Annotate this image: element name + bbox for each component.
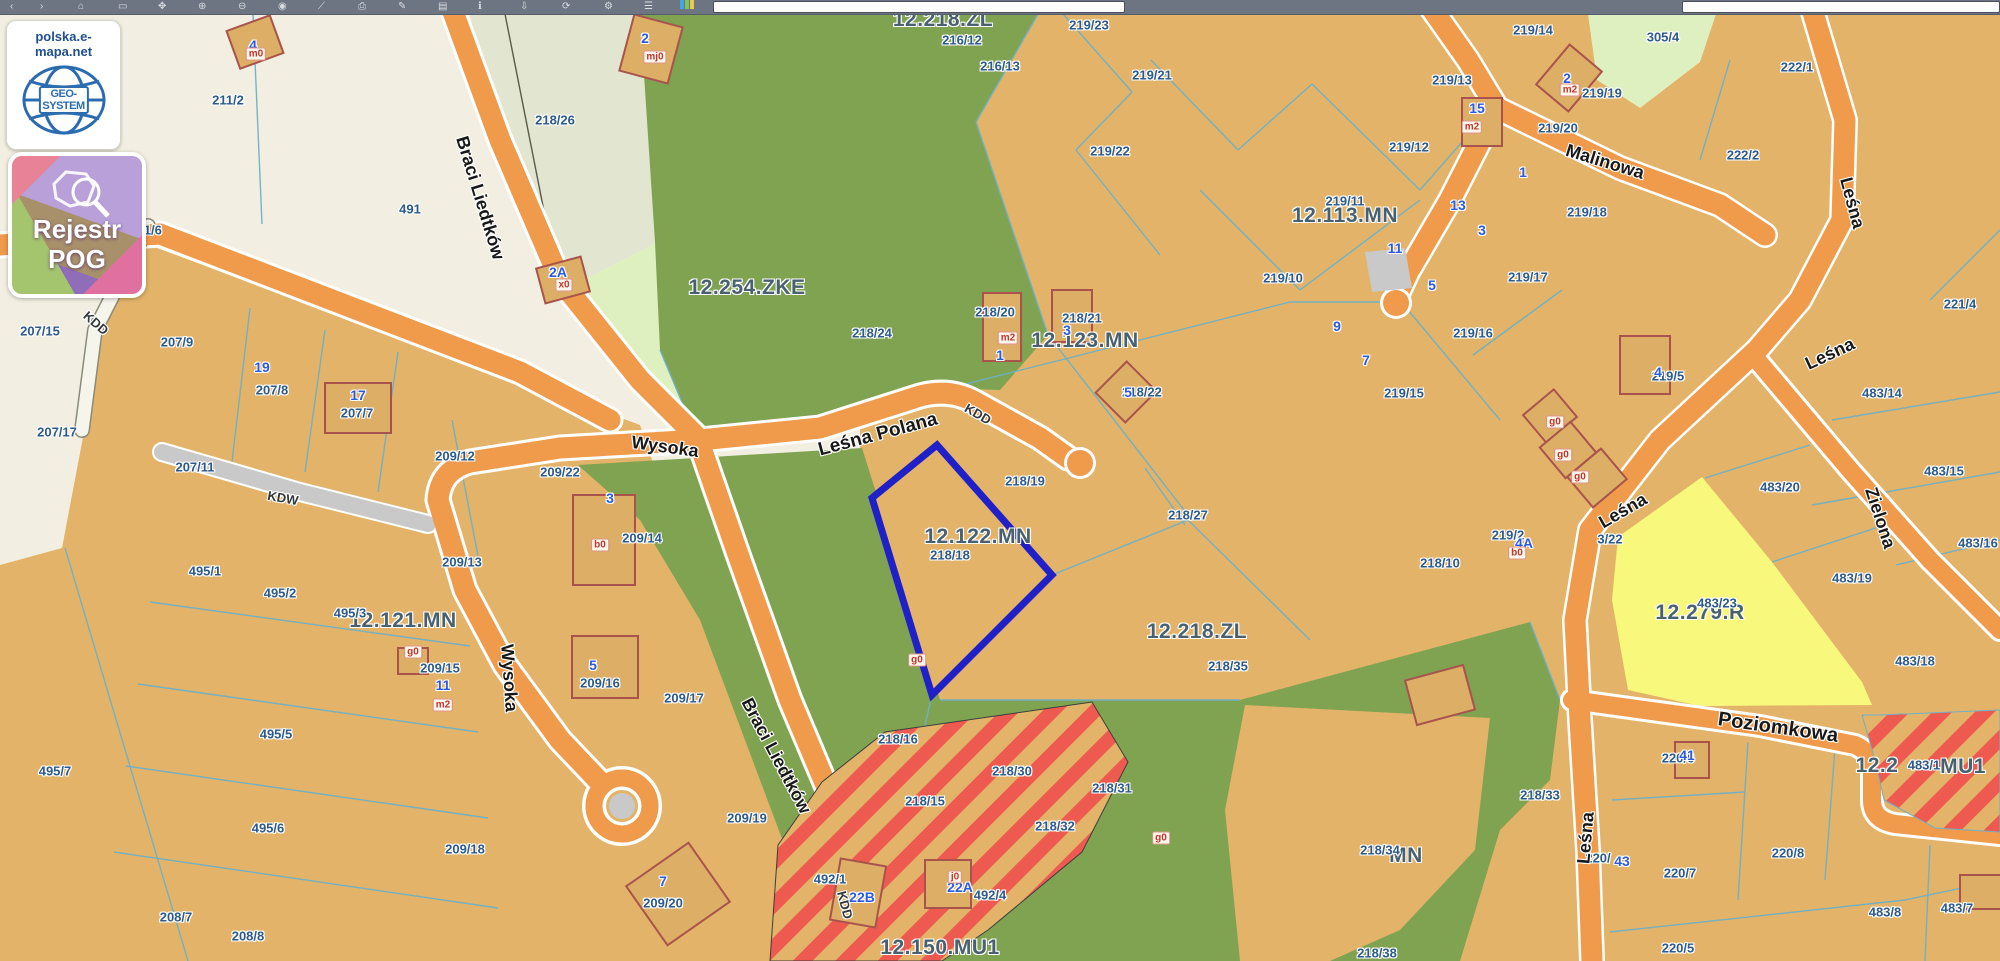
- forward-icon[interactable]: ›: [40, 0, 43, 13]
- pan-icon[interactable]: ✥: [158, 0, 166, 13]
- map-application: { "toolbar": { "icons": [ {"name":"back-…: [0, 0, 2000, 961]
- zoom-out-icon[interactable]: ⊖: [238, 0, 246, 13]
- search-input-left[interactable]: [713, 1, 1125, 13]
- info-icon[interactable]: ℹ: [478, 0, 482, 13]
- geo-system-label: GEO-SYSTEM: [38, 86, 88, 114]
- refresh-icon[interactable]: ⟳: [562, 0, 570, 13]
- geo-system-globe-logo: GEO-SYSTEM: [21, 63, 107, 137]
- top-toolbar: ‹›⌂▭✥⊕⊖◉⟋⎙✎▤ℹ⇩⟳⚙☰: [0, 0, 2000, 15]
- palette-swatch: [690, 0, 694, 9]
- search-input-right[interactable]: [1682, 1, 2000, 13]
- rejestr-pog-label: Rejestr POG: [12, 214, 142, 274]
- select-rect-icon[interactable]: ▭: [118, 0, 127, 13]
- marker-icon[interactable]: ◉: [278, 0, 287, 13]
- back-icon[interactable]: ‹: [10, 0, 13, 13]
- map-canvas[interactable]: [0, 14, 2000, 961]
- zoom-in-icon[interactable]: ⊕: [198, 0, 206, 13]
- site-label: polska.e-mapa.net: [7, 29, 120, 59]
- settings-icon[interactable]: ⚙: [604, 0, 613, 13]
- rejestr-pog-badge[interactable]: Rejestr POG: [8, 152, 146, 298]
- download-icon[interactable]: ⇩: [520, 0, 528, 13]
- emapa-logo-card[interactable]: polska.e-mapa.net GEO-SYSTEM: [6, 20, 121, 150]
- basemap-palette-icon[interactable]: [680, 0, 695, 13]
- palette-swatch: [680, 0, 684, 9]
- menu-icon[interactable]: ☰: [644, 0, 653, 13]
- home-icon[interactable]: ⌂: [78, 0, 84, 13]
- draw-icon[interactable]: ✎: [398, 0, 406, 13]
- layers-icon[interactable]: ▤: [438, 0, 447, 13]
- print-icon[interactable]: ⎙: [358, 0, 366, 13]
- map-svg: [0, 14, 2000, 961]
- palette-swatch: [685, 0, 689, 9]
- measure-icon[interactable]: ⟋: [318, 0, 325, 13]
